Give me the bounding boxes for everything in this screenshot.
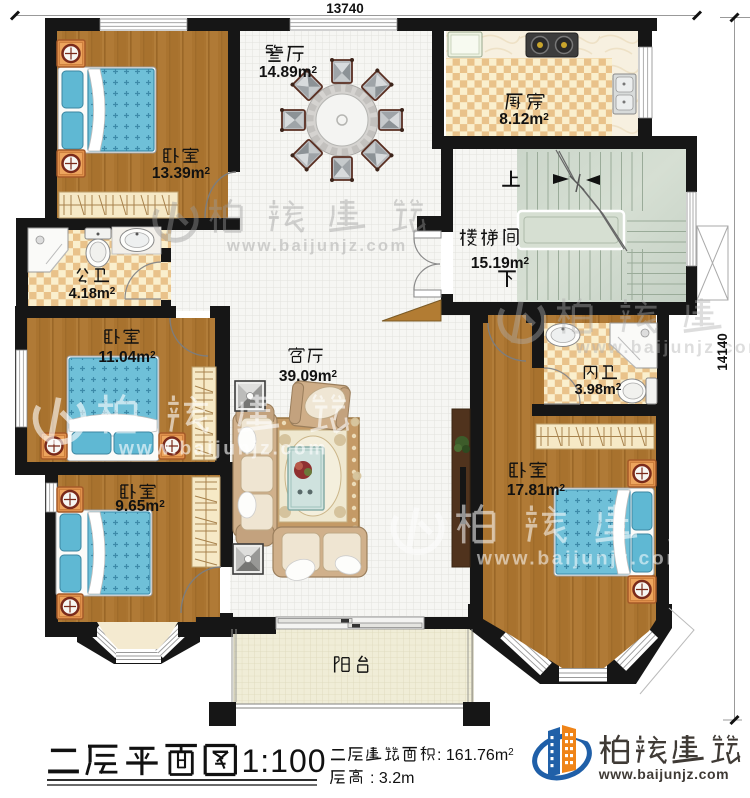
svg-text:14.89m2: 14.89m2 bbox=[259, 64, 318, 81]
svg-text:: 161.76m2: : 161.76m2 bbox=[437, 747, 514, 764]
svg-text:9.65m2: 9.65m2 bbox=[115, 498, 165, 515]
svg-text:www.baijunjz.com: www.baijunjz.com bbox=[226, 236, 408, 255]
svg-text:8.12m2: 8.12m2 bbox=[499, 111, 549, 128]
svg-text:39.09m2: 39.09m2 bbox=[279, 368, 338, 385]
svg-text:17.81m2: 17.81m2 bbox=[507, 482, 566, 499]
svg-text:13740: 13740 bbox=[326, 1, 364, 16]
svg-text:3.98m2: 3.98m2 bbox=[575, 382, 622, 398]
svg-text:www.baijunjz.com: www.baijunjz.com bbox=[118, 437, 328, 459]
svg-text:4.18m2: 4.18m2 bbox=[69, 286, 116, 302]
svg-text:www.baijunjz.com: www.baijunjz.com bbox=[476, 547, 686, 569]
svg-text:11.04m2: 11.04m2 bbox=[98, 349, 156, 366]
svg-text:www.baijunjz.com: www.baijunjz.com bbox=[598, 766, 729, 782]
svg-text:13.39m2: 13.39m2 bbox=[152, 165, 211, 182]
svg-text:: 3.2m: : 3.2m bbox=[370, 770, 414, 787]
svg-text:1:100: 1:100 bbox=[241, 743, 326, 779]
svg-text:14140: 14140 bbox=[715, 333, 730, 371]
svg-text:15.19m2: 15.19m2 bbox=[471, 255, 530, 272]
